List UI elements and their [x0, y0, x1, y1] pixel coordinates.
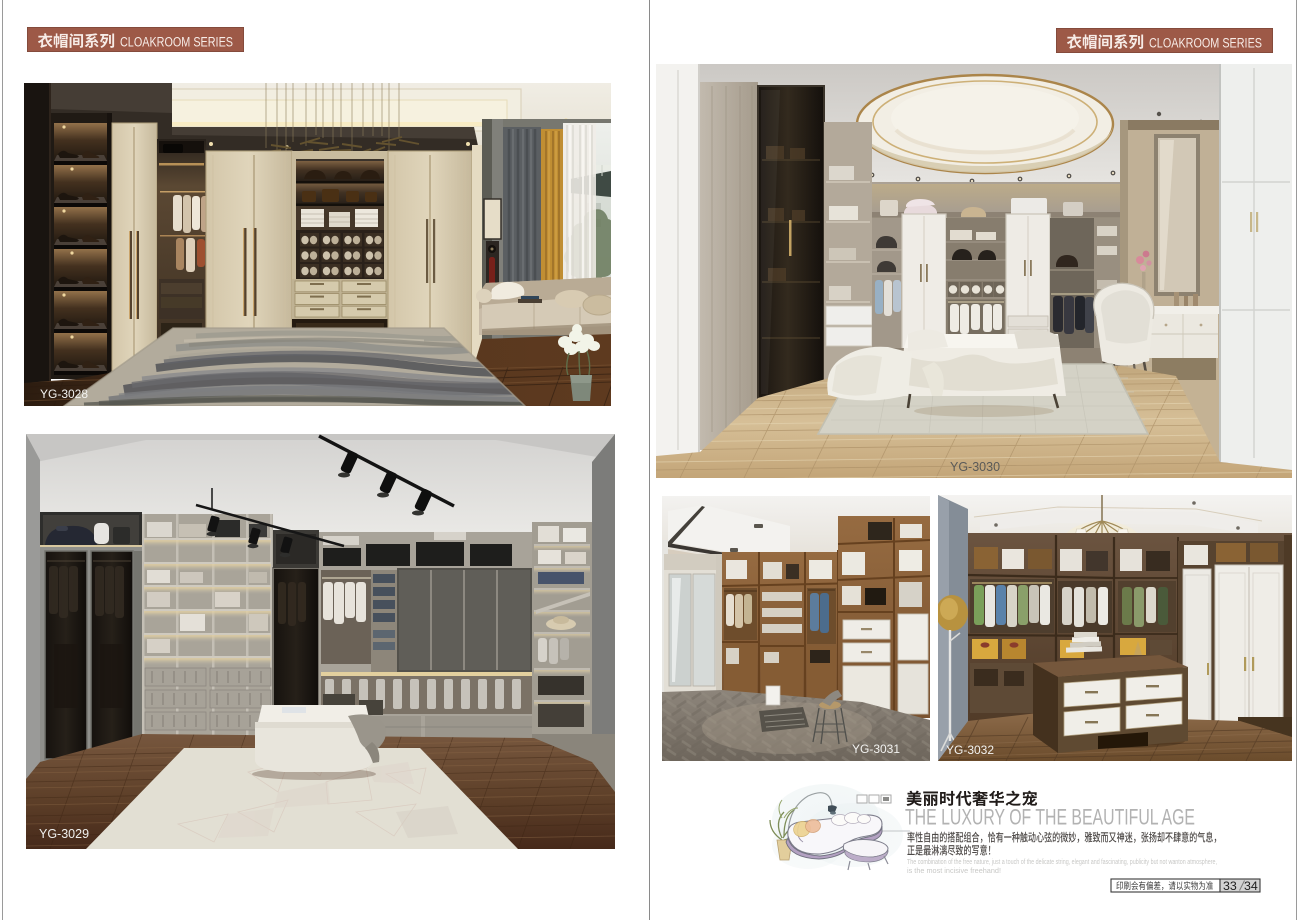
svg-text:THE LUXURY OF THE BEAUTIFUL AG: THE LUXURY OF THE BEAUTIFUL AGE [905, 805, 1195, 830]
svg-text:CLOAKROOM SERIES: CLOAKROOM SERIES [120, 35, 233, 51]
svg-text:33: 33 [1223, 879, 1237, 893]
svg-text:YG-3030: YG-3030 [950, 460, 1000, 474]
svg-text:YG-3032: YG-3032 [946, 743, 994, 757]
svg-text:34: 34 [1244, 879, 1258, 893]
svg-text:YG-3029: YG-3029 [39, 827, 89, 841]
svg-text:The combination of the free na: The combination of the free nature, just… [907, 857, 1217, 866]
svg-text:is the most incisive freehand!: is the most incisive freehand! [907, 866, 1001, 875]
svg-text:YG-3028: YG-3028 [40, 387, 88, 401]
svg-text:CLOAKROOM SERIES: CLOAKROOM SERIES [1149, 36, 1262, 52]
svg-text:YG-3031: YG-3031 [852, 742, 900, 756]
